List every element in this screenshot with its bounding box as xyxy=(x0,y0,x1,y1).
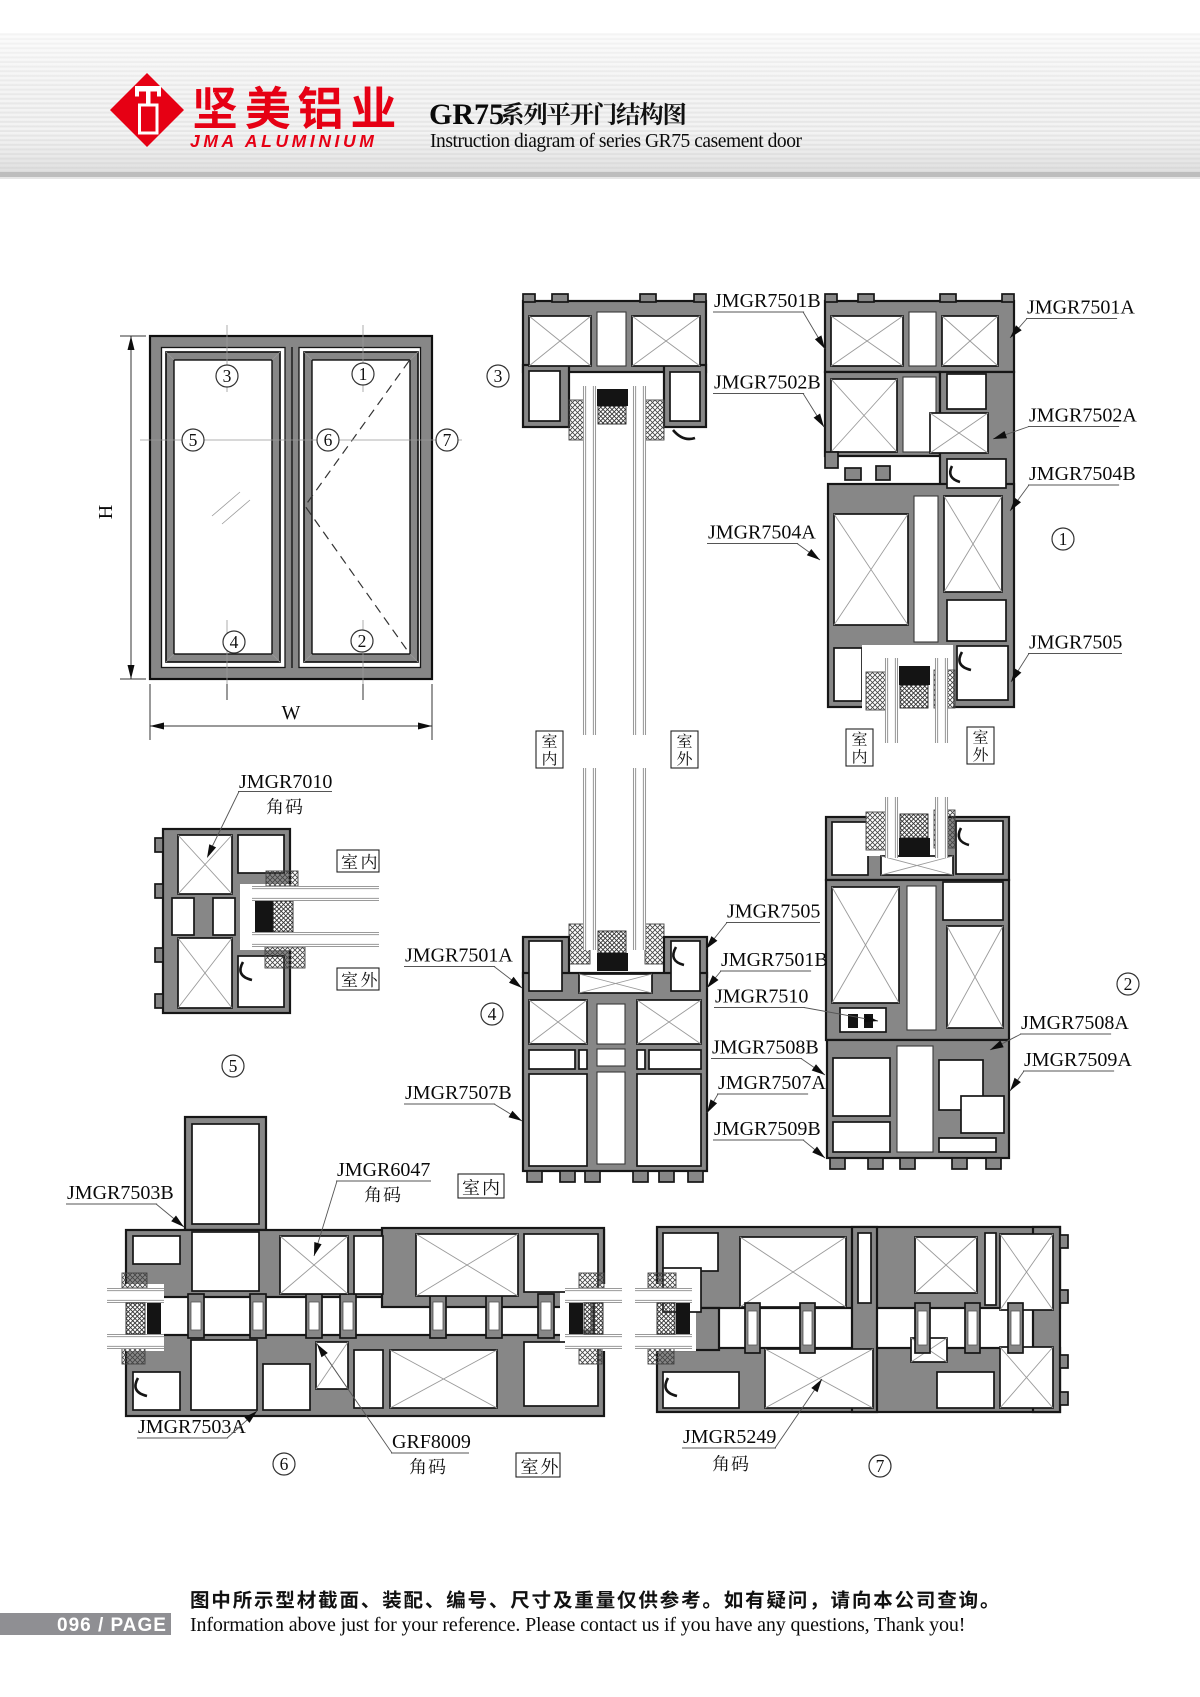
svg-text:JMGR5249: JMGR5249 xyxy=(683,1426,776,1448)
svg-text:1: 1 xyxy=(359,364,368,384)
svg-text:JMGR7507B: JMGR7507B xyxy=(405,1082,512,1104)
svg-text:GR75: GR75 xyxy=(429,98,504,131)
svg-text:JMGR7501B: JMGR7501B xyxy=(714,290,821,312)
svg-text:Information above just for you: Information above just for your referenc… xyxy=(190,1614,965,1636)
svg-text:JMGR7504A: JMGR7504A xyxy=(708,522,816,544)
svg-text:JMGR7010: JMGR7010 xyxy=(239,771,332,793)
svg-text:JMGR6047: JMGR6047 xyxy=(337,1159,430,1181)
svg-text:H: H xyxy=(95,505,117,519)
svg-text:4: 4 xyxy=(230,632,239,652)
svg-text:JMGR7504B: JMGR7504B xyxy=(1029,463,1136,485)
svg-text:4: 4 xyxy=(488,1004,497,1024)
svg-text:JMA ALUMINIUM: JMA ALUMINIUM xyxy=(190,131,377,151)
svg-text:JMGR7507A: JMGR7507A xyxy=(718,1072,826,1094)
svg-text:5: 5 xyxy=(229,1056,238,1076)
svg-text:JMGR7501A: JMGR7501A xyxy=(1027,297,1135,319)
svg-text:1: 1 xyxy=(1059,529,1068,549)
svg-text:5: 5 xyxy=(189,430,198,450)
svg-text:JMGR7503B: JMGR7503B xyxy=(67,1182,174,1204)
svg-text:JMGR7501A: JMGR7501A xyxy=(405,945,513,967)
svg-text:JMGR7505: JMGR7505 xyxy=(727,901,820,923)
svg-text:3: 3 xyxy=(223,366,232,386)
svg-text:GRF8009: GRF8009 xyxy=(392,1431,471,1453)
svg-text:6: 6 xyxy=(324,430,333,450)
svg-text:JMGR7508A: JMGR7508A xyxy=(1021,1012,1129,1034)
svg-text:Instruction diagram of series: Instruction diagram of series GR75 casem… xyxy=(430,131,802,152)
svg-text:6: 6 xyxy=(280,1454,289,1474)
svg-text:2: 2 xyxy=(358,631,367,651)
svg-text:7: 7 xyxy=(443,430,452,450)
svg-text:JMGR7510: JMGR7510 xyxy=(715,986,808,1008)
svg-text:W: W xyxy=(282,702,301,724)
svg-text:JMGR7505: JMGR7505 xyxy=(1029,632,1122,654)
svg-text:JMGR7501B: JMGR7501B xyxy=(721,949,828,971)
svg-text:JMGR7509B: JMGR7509B xyxy=(714,1118,821,1140)
svg-text:JMGR7502B: JMGR7502B xyxy=(714,372,821,394)
svg-text:JMGR7509A: JMGR7509A xyxy=(1024,1049,1132,1071)
svg-text:096 / PAGE: 096 / PAGE xyxy=(57,1615,167,1636)
svg-text:JMGR7502A: JMGR7502A xyxy=(1029,405,1137,427)
svg-text:JMGR7508B: JMGR7508B xyxy=(712,1037,819,1059)
svg-text:2: 2 xyxy=(1124,974,1133,994)
svg-text:3: 3 xyxy=(494,366,503,386)
svg-text:7: 7 xyxy=(876,1456,885,1476)
